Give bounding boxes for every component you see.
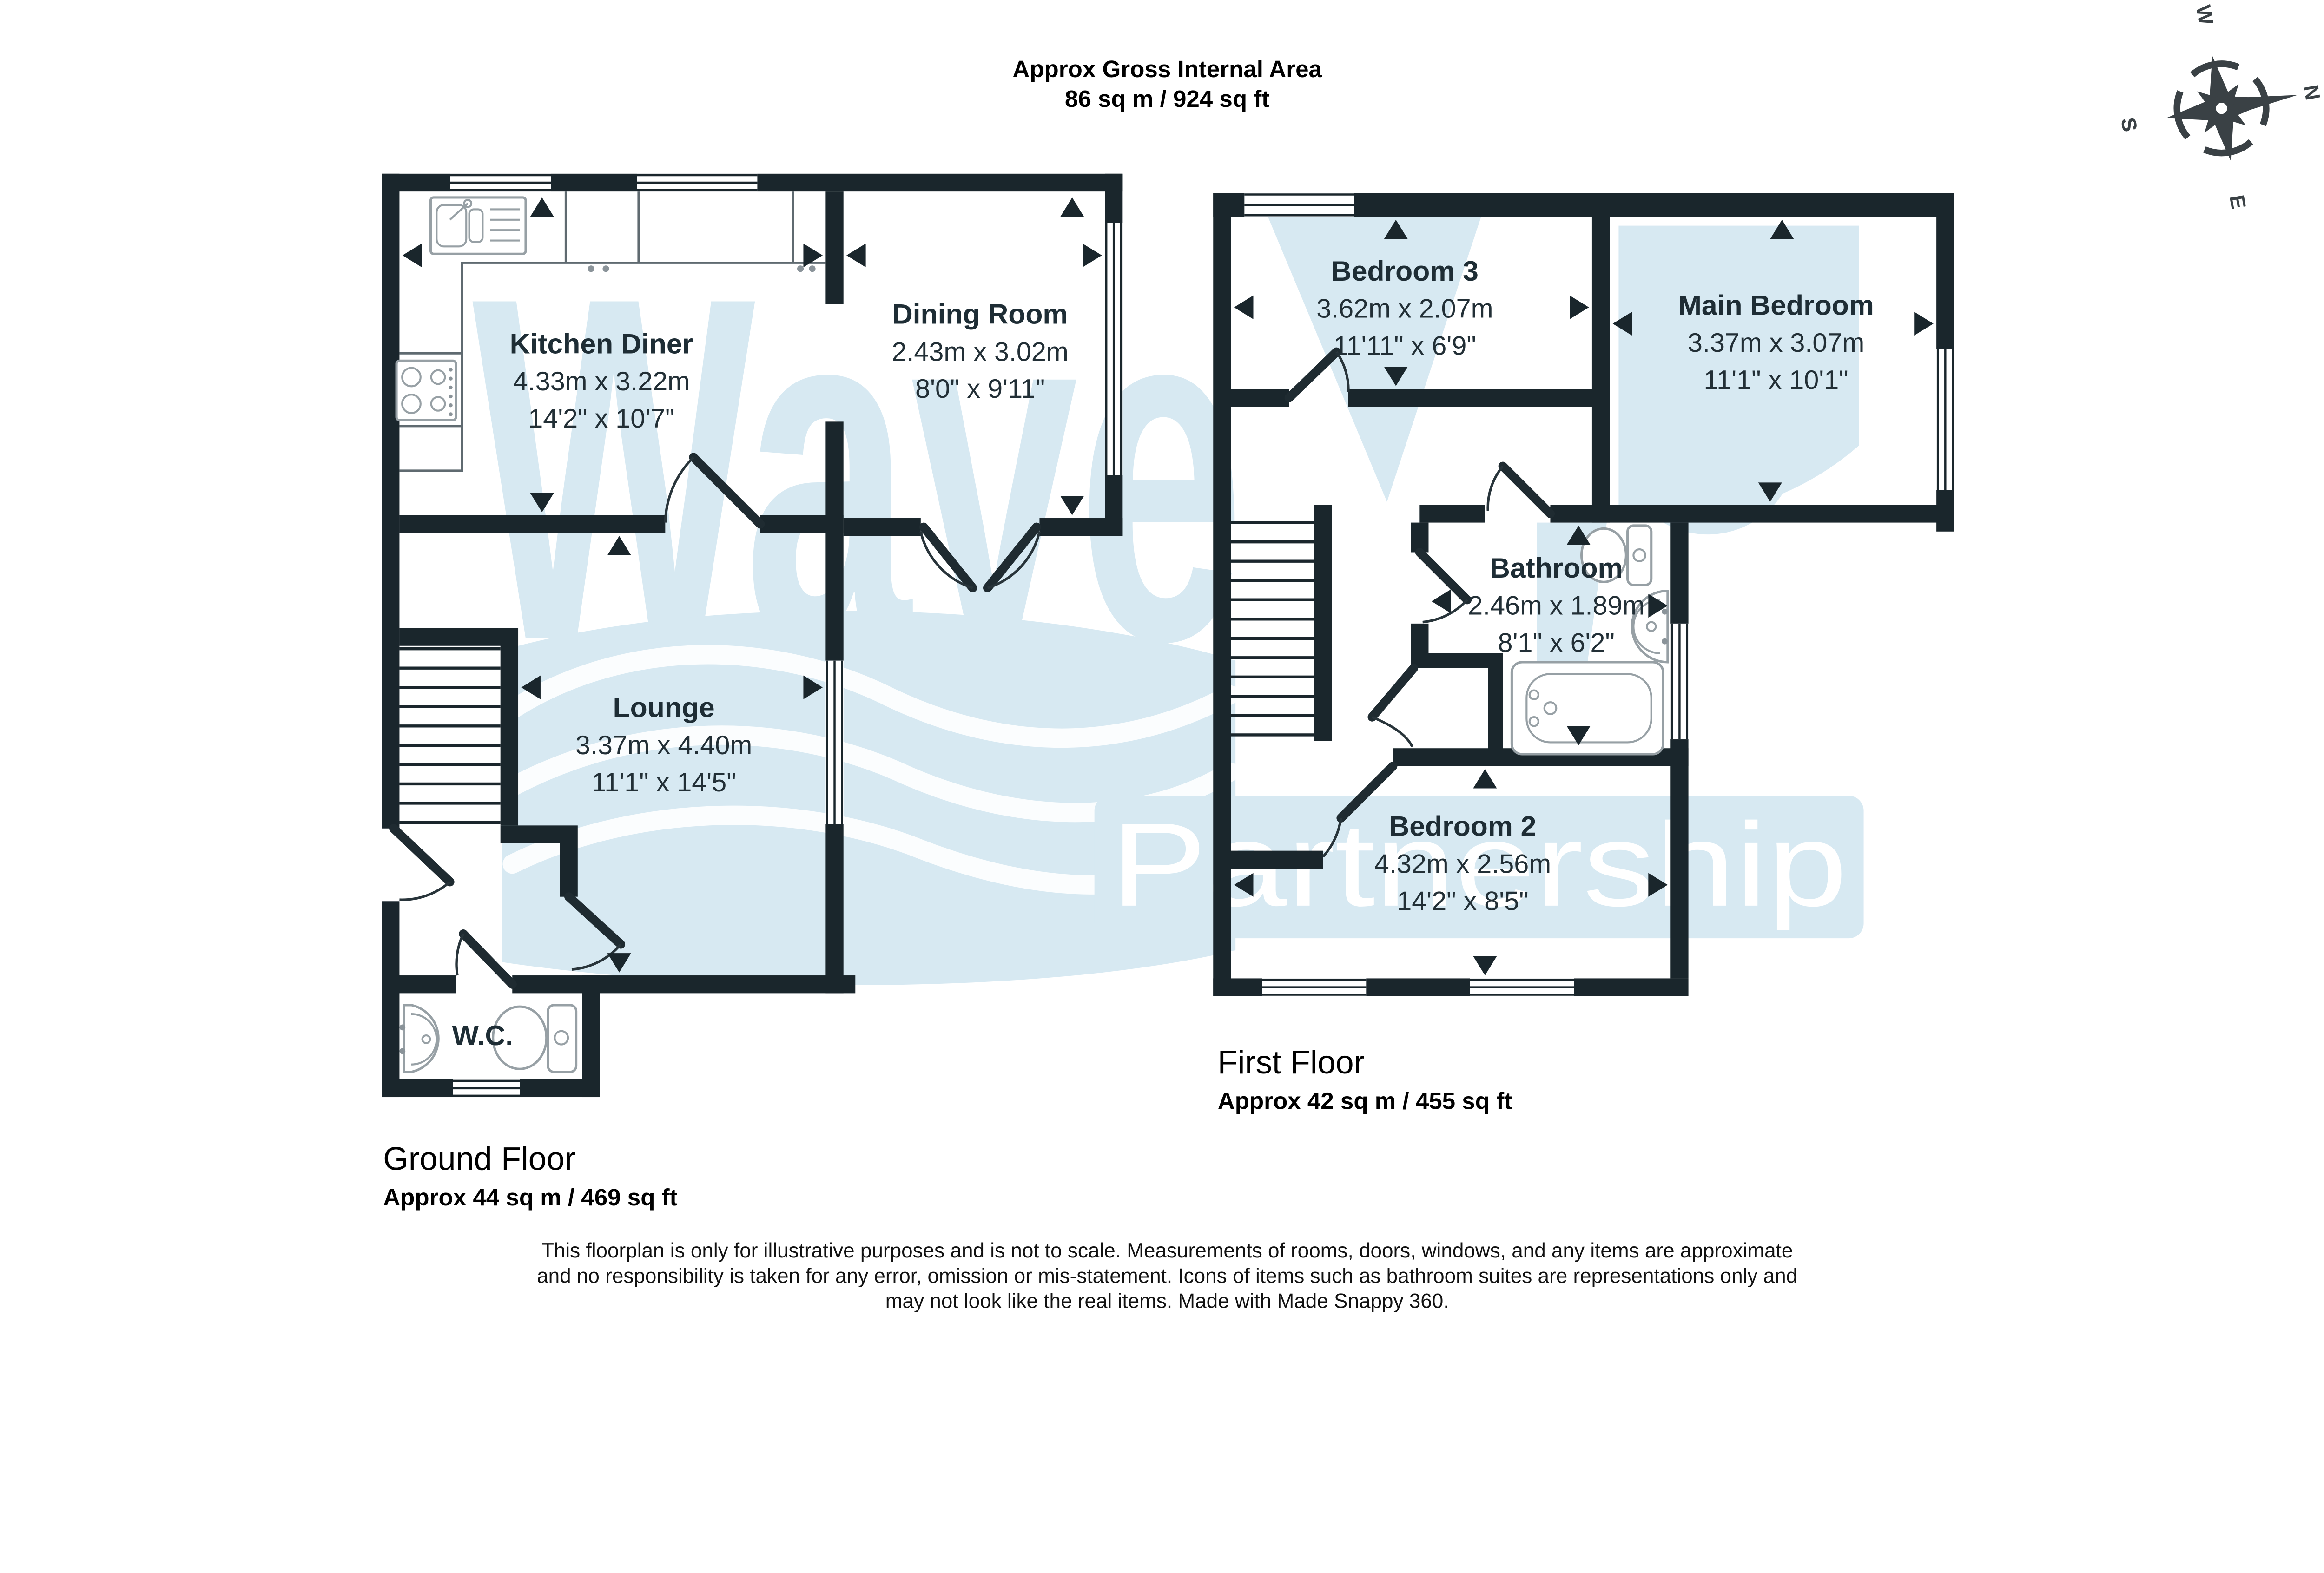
door-main-bedroom bbox=[1488, 466, 1550, 513]
bedroom3-label: Bedroom 3 bbox=[1331, 255, 1479, 287]
measure-arrow bbox=[1473, 769, 1497, 789]
measure-arrow bbox=[1914, 312, 1934, 336]
disclaimer-line3: may not look like the real items. Made w… bbox=[885, 1290, 1449, 1313]
kitchen-diner-metric: 4.33m x 3.22m bbox=[513, 367, 690, 396]
main-bedroom-label: Main Bedroom bbox=[1678, 289, 1874, 321]
window bbox=[1670, 624, 1688, 739]
door-bathroom bbox=[1419, 552, 1467, 622]
disclaimer-line2: and no responsibility is taken for any e… bbox=[537, 1264, 1797, 1287]
bathroom-imperial: 8'1" x 6'2" bbox=[1498, 628, 1615, 658]
kitchen-diner-imperial: 14'2" x 10'7" bbox=[528, 404, 674, 434]
kitchen-diner-label: Kitchen Diner bbox=[510, 328, 693, 359]
ground-floor-area: Approx 44 sq m / 469 sq ft bbox=[383, 1184, 677, 1211]
bedroom2-imperial: 14'2" x 8'5" bbox=[1397, 886, 1528, 916]
wc-basin-icon bbox=[399, 1005, 438, 1072]
page-title-line2: 86 sq m / 924 sq ft bbox=[1065, 86, 1269, 112]
window bbox=[1262, 978, 1367, 996]
disclaimer-line1: This floorplan is only for illustrative … bbox=[541, 1239, 1793, 1262]
window bbox=[1244, 193, 1354, 217]
main-bedroom-imperial: 11'1" x 10'1" bbox=[1704, 365, 1849, 395]
lounge-label: Lounge bbox=[613, 691, 715, 723]
compass-e: E bbox=[2225, 193, 2250, 211]
measure-arrow bbox=[1570, 296, 1589, 319]
window bbox=[1470, 978, 1574, 996]
window bbox=[1105, 223, 1122, 475]
page-title-line1: Approx Gross Internal Area bbox=[1012, 56, 1322, 82]
wc-label: W.C. bbox=[452, 1020, 513, 1051]
window bbox=[825, 661, 843, 824]
measure-arrow bbox=[1432, 589, 1451, 613]
bath-tub-icon bbox=[1512, 662, 1663, 754]
compass-icon: N E S W bbox=[2100, 0, 2324, 227]
compass-w: W bbox=[2192, 3, 2218, 27]
lounge-imperial: 11'1" x 14'5" bbox=[592, 768, 736, 797]
window bbox=[637, 174, 758, 191]
main-bedroom-metric: 3.37m x 3.07m bbox=[1688, 328, 1864, 358]
door-front bbox=[394, 829, 450, 900]
door-cupboard bbox=[1372, 668, 1413, 747]
ground-floor-heading: Ground Floor bbox=[383, 1140, 575, 1177]
bathroom-label: Bathroom bbox=[1490, 552, 1623, 584]
window bbox=[450, 174, 551, 191]
bedroom2-label: Bedroom 2 bbox=[1389, 810, 1536, 842]
hob-icon bbox=[396, 361, 456, 420]
dining-room-imperial: 8'0" x 9'11" bbox=[915, 374, 1045, 404]
dining-room-metric: 2.43m x 3.02m bbox=[891, 337, 1068, 367]
window bbox=[1936, 349, 1954, 490]
kitchen-sink-icon bbox=[431, 197, 526, 254]
bedroom3-imperial: 11'11" x 6'9" bbox=[1334, 331, 1476, 361]
bedroom3-metric: 3.62m x 2.07m bbox=[1316, 294, 1493, 324]
watermark: Wave Partnership bbox=[472, 196, 1864, 985]
first-floor-heading: First Floor bbox=[1218, 1044, 1365, 1080]
bedroom2-metric: 4.32m x 2.56m bbox=[1374, 849, 1551, 879]
dining-room-label: Dining Room bbox=[892, 298, 1068, 329]
bathroom-metric: 2.46m x 1.89m bbox=[1468, 591, 1644, 621]
first-floor-area: Approx 42 sq m / 455 sq ft bbox=[1218, 1088, 1512, 1114]
window bbox=[453, 1079, 520, 1097]
compass-s: S bbox=[2116, 116, 2141, 133]
floorplan-canvas: Wave Partnership Approx Gross Internal A… bbox=[0, 0, 2324, 1345]
lounge-metric: 3.37m x 4.40m bbox=[575, 731, 752, 760]
measure-arrow bbox=[403, 244, 422, 267]
compass-n: N bbox=[2299, 83, 2324, 102]
measure-arrow bbox=[1473, 956, 1497, 976]
